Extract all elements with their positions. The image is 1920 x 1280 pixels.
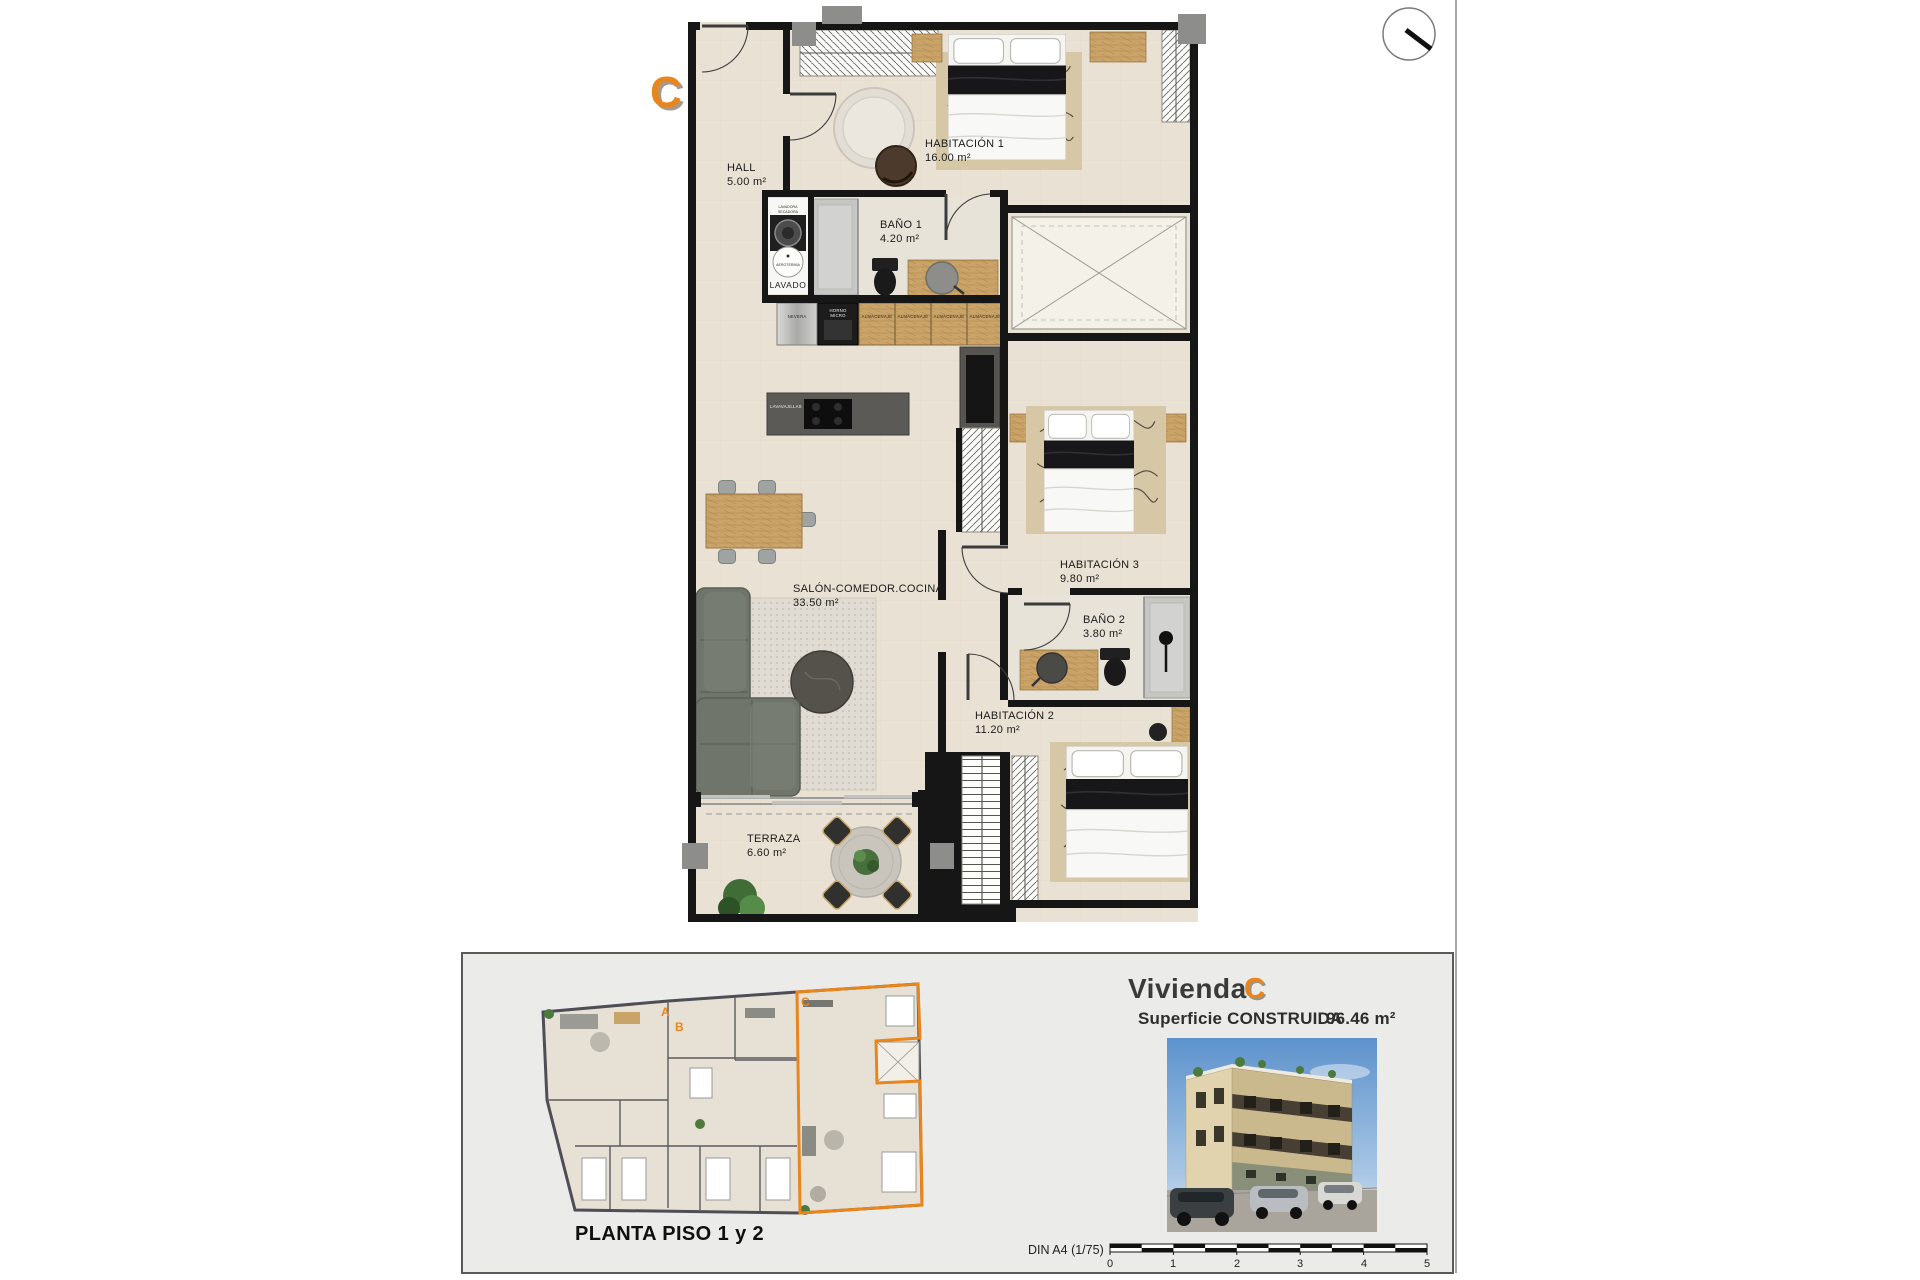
mini-unit-b: B <box>675 1020 684 1034</box>
nevera-label: NEVERA <box>788 314 807 319</box>
elevator-void <box>1012 217 1186 329</box>
room-area-bano1: 4.20 m² <box>880 233 919 245</box>
desk-chair <box>1149 723 1167 741</box>
room-area-hab1: 16.00 m² <box>925 152 971 164</box>
footer-panel: A B C PLANTA PISO 1 y 2 Vivienda C C Sup… <box>462 953 1453 1273</box>
lavado-label: LAVADO <box>770 280 807 290</box>
room-label-hab3: HABITACIÓN 3 <box>1060 558 1139 571</box>
sink <box>926 262 958 294</box>
bedroom3-bed <box>1044 410 1134 532</box>
almacenaje-label-4: ALMACENAJE <box>970 314 1001 319</box>
almacenaje-label-3: ALMACENAJE <box>934 314 965 319</box>
armchair <box>876 146 916 186</box>
lavadora-label: LAVADORA <box>778 205 798 209</box>
unit-letter: C <box>650 68 682 117</box>
dining-table <box>706 494 802 548</box>
mini-unit-a: A <box>661 1005 670 1019</box>
room-label-hall: HALL <box>727 162 756 174</box>
room-area-salon: 33.50 m² <box>793 597 839 609</box>
bedroom2-bed <box>1066 746 1188 878</box>
room-label-bano2: BAÑO 2 <box>1083 613 1125 626</box>
scale-tick-1: 1 <box>1170 1258 1176 1270</box>
coffee-table <box>791 651 853 713</box>
scale-tick-0: 0 <box>1107 1258 1113 1270</box>
vivienda-unit: C <box>1244 973 1265 1005</box>
room-label-salon: SALÓN-COMEDOR.COCINA <box>793 582 944 595</box>
lavavajillas-label: LAVAVAJILLAS <box>770 404 802 409</box>
room-area-hab3: 9.80 m² <box>1060 573 1099 585</box>
plan-canvas: LAVADORA SECADORA AEROTERMIA LAVADO NEVE… <box>0 0 1920 1280</box>
scale-tick-5: 5 <box>1424 1258 1430 1270</box>
room-label-hab2: HABITACIÓN 2 <box>975 709 1054 722</box>
vivienda-label: Vivienda <box>1128 973 1247 1004</box>
superficie-value: 96.46 m² <box>1326 1009 1396 1028</box>
room-label-bano1: BAÑO 1 <box>880 218 922 231</box>
room-area-hall: 5.00 m² <box>727 176 766 188</box>
almacenaje-label-2: ALMACENAJE <box>898 314 929 319</box>
overview-mini-plan: A B C PLANTA PISO 1 y 2 <box>543 984 922 1245</box>
mini-unit-c: C <box>801 995 810 1009</box>
room-area-hab2: 11.20 m² <box>975 724 1020 736</box>
room-area-terraza: 6.60 m² <box>747 847 786 859</box>
plan-page: LAVADORA SECADORA AEROTERMIA LAVADO NEVE… <box>0 0 1920 1280</box>
main-floor-plan: LAVADORA SECADORA AEROTERMIA LAVADO NEVE… <box>650 6 1206 922</box>
room-label-hab1: HABITACIÓN 1 <box>925 137 1004 150</box>
room-label-terraza: TERRAZA <box>747 833 801 845</box>
micro-label: MICRO <box>830 313 846 318</box>
scale-tick-3: 3 <box>1297 1258 1303 1270</box>
secadora-label: SECADORA <box>778 210 799 214</box>
north-indicator-icon <box>1383 8 1435 60</box>
shower-head-icon <box>1159 631 1173 645</box>
aerotermia-label: AEROTERMIA <box>776 263 800 267</box>
superficie-label: Superficie CONSTRUIDA <box>1138 1009 1342 1028</box>
overview-title: PLANTA PISO 1 y 2 <box>575 1223 764 1245</box>
building-photo <box>1167 1038 1377 1232</box>
scale-label: DIN A4 (1/75) <box>1028 1243 1104 1257</box>
scale-tick-4: 4 <box>1361 1258 1367 1270</box>
sink <box>1037 653 1067 683</box>
fridge <box>777 303 817 345</box>
aerotermia-icon <box>773 247 803 277</box>
scale-tick-2: 2 <box>1234 1258 1240 1270</box>
almacenaje-label-1: ALMACENAJE <box>862 314 893 319</box>
room-area-bano2: 3.80 m² <box>1083 628 1122 640</box>
